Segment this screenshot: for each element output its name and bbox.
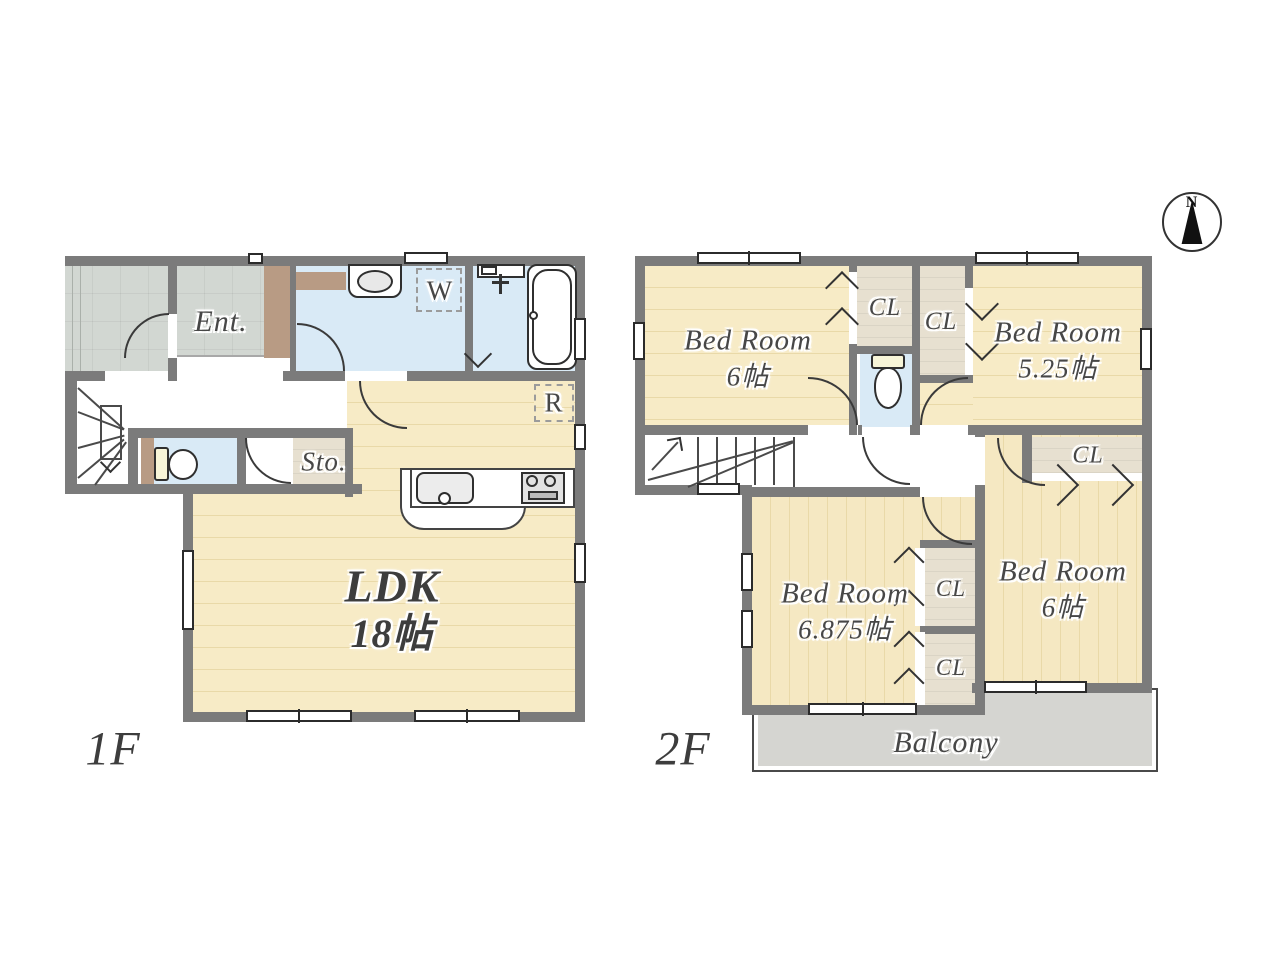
shower-fixture — [499, 274, 502, 294]
washer-label: W — [427, 276, 453, 307]
window — [697, 483, 740, 495]
window — [741, 610, 753, 648]
toilet-tank — [154, 447, 169, 481]
wall-segment — [742, 485, 752, 715]
wall-segment — [912, 266, 920, 430]
bathtub-inner — [532, 269, 572, 365]
wall-segment — [168, 256, 177, 314]
wall-segment — [742, 487, 920, 497]
closet-e-label: CL — [1072, 443, 1103, 470]
wall-segment — [920, 626, 975, 634]
window — [574, 318, 586, 360]
window — [697, 252, 801, 264]
bedroom-se-size: 6帖 — [1042, 586, 1085, 625]
window-mullion — [862, 702, 864, 716]
window-mullion — [1035, 680, 1037, 694]
entrance-step-line — [177, 355, 264, 357]
toilet-bowl — [168, 449, 198, 480]
wall-segment — [407, 371, 585, 381]
bedroom-se-label: Bed Room — [999, 556, 1127, 589]
stair-tread — [754, 437, 756, 485]
stove-burner — [526, 475, 538, 487]
closet-ne-label: CL — [925, 308, 958, 336]
stair-tread — [793, 437, 795, 487]
window — [1140, 328, 1152, 370]
window — [248, 253, 263, 264]
window — [574, 424, 586, 450]
window-mullion — [298, 709, 300, 723]
stair-tread — [697, 437, 699, 485]
door-leaf — [168, 314, 177, 358]
bath-sink — [481, 266, 497, 275]
kitchen-faucet — [438, 492, 451, 505]
wall-segment — [635, 256, 645, 495]
floor2-label: 2F — [655, 722, 710, 777]
wall-segment — [635, 425, 808, 435]
window-mullion — [748, 251, 750, 265]
window — [404, 252, 448, 264]
bedroom-ne-label: Bed Room — [994, 317, 1122, 350]
stove-grill — [528, 491, 558, 500]
window — [633, 322, 645, 360]
wall-segment — [65, 371, 77, 494]
compass-north-label: N — [1186, 194, 1199, 212]
ldk-size-label: 18帖 — [351, 601, 434, 659]
window — [414, 710, 520, 722]
wall-segment — [965, 266, 973, 288]
wall-segment — [858, 425, 862, 435]
storage-label: Sto. — [301, 447, 346, 478]
window — [984, 681, 1087, 693]
shoe-cabinet — [264, 266, 290, 358]
shower-fixture — [492, 281, 509, 284]
wall-segment — [65, 371, 105, 381]
washroom-cabinet — [296, 272, 346, 290]
wall-segment — [857, 346, 912, 354]
wall-segment — [65, 484, 362, 494]
window-mullion — [466, 709, 468, 723]
wall-segment — [975, 425, 985, 437]
stair-direction-arrow — [667, 437, 683, 453]
window — [808, 703, 917, 715]
closet-s1-label: CL — [936, 576, 966, 602]
bedroom-nw-size: 6帖 — [727, 355, 770, 394]
window — [246, 710, 352, 722]
wall-segment — [128, 428, 353, 438]
bedroom-nw-label: Bed Room — [684, 325, 812, 358]
wall-segment — [183, 712, 585, 722]
bedroom-ne-size: 5.25帖 — [1018, 347, 1097, 386]
window — [975, 252, 1079, 264]
floor-plan-canvas: W R Ent. Sto. LDK 18帖 1F — [0, 0, 1280, 960]
closet-s2-label: CL — [936, 655, 966, 681]
stove-burner — [544, 475, 556, 487]
wall-segment — [168, 358, 177, 381]
door-arc — [245, 438, 291, 484]
entrance-label: Ent. — [194, 305, 247, 339]
wall-segment — [968, 425, 1152, 435]
bedroom-sw-size: 6.875帖 — [798, 608, 892, 647]
balcony-label: Balcony — [893, 726, 998, 760]
porch-edge-line — [80, 266, 81, 371]
window — [741, 553, 753, 591]
vanity-basin — [357, 270, 393, 293]
wall-segment — [742, 705, 808, 715]
toilet-bowl — [874, 367, 902, 409]
wall-segment — [1087, 683, 1152, 693]
window — [574, 543, 586, 583]
window-mullion — [1026, 251, 1028, 265]
wall-segment — [290, 256, 296, 381]
wall-segment — [1142, 256, 1152, 693]
porch-edge-line — [72, 266, 73, 371]
closet-nw-label: CL — [869, 294, 902, 322]
toilet-counter-strip — [141, 438, 154, 484]
bathtub-faucet — [529, 311, 538, 320]
window — [182, 550, 194, 630]
fridge-label: R — [544, 388, 563, 419]
wall-segment — [128, 428, 138, 484]
bedroom-sw-label: Bed Room — [781, 578, 909, 611]
floor1-label: 1F — [85, 722, 140, 777]
door-arc — [862, 437, 910, 485]
stair-tread — [735, 437, 737, 485]
